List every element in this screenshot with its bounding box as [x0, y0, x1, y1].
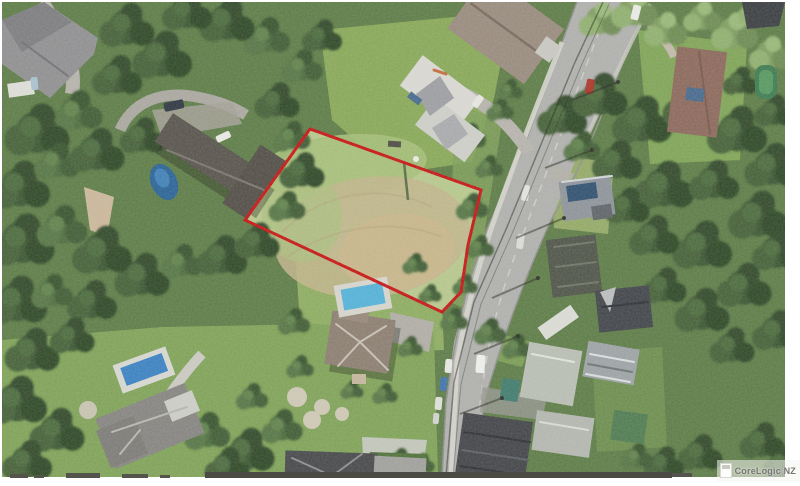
- aerial-scene: [2, 2, 785, 477]
- photo-grain: [2, 2, 785, 477]
- corelogic-logo-icon: [720, 463, 732, 478]
- aerial-photo: [2, 2, 785, 477]
- watermark-text: CoreLogic NZ: [735, 466, 796, 476]
- report-page: CoreLogic NZ: [0, 0, 800, 486]
- corelogic-watermark: CoreLogic NZ: [717, 460, 800, 481]
